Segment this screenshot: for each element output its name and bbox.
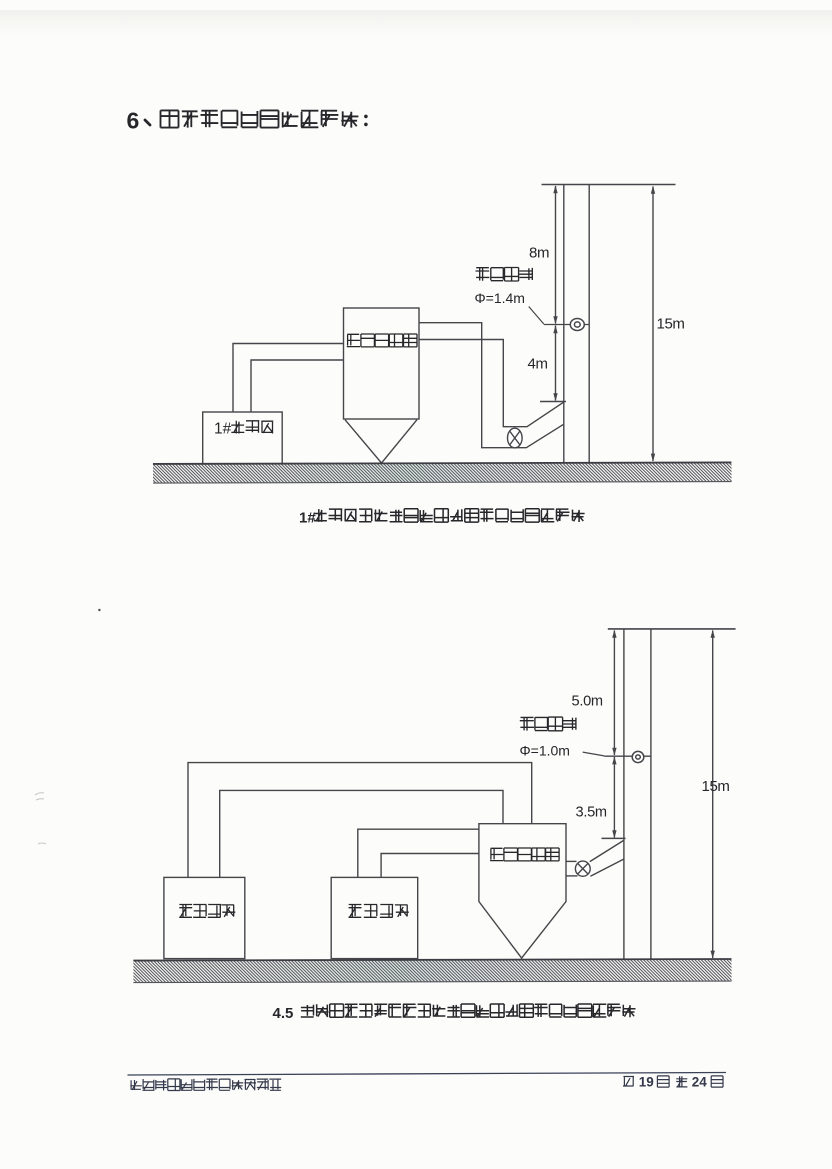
svg-text:1#: 1#	[299, 510, 316, 527]
svg-text:Φ=1.4m: Φ=1.4m	[475, 290, 525, 306]
svg-text:24: 24	[692, 1075, 708, 1090]
svg-text:15m: 15m	[657, 316, 685, 333]
svg-text:4.5: 4.5	[273, 1005, 294, 1022]
svg-text:8m: 8m	[529, 245, 549, 262]
svg-text:19: 19	[639, 1075, 654, 1090]
svg-text:Φ=1.0m: Φ=1.0m	[520, 743, 570, 759]
svg-text:15m: 15m	[702, 778, 730, 795]
svg-text:4m: 4m	[528, 356, 548, 373]
svg-text:1#: 1#	[214, 421, 232, 438]
svg-text:5.0m: 5.0m	[572, 694, 603, 710]
svg-text:3.5m: 3.5m	[576, 805, 607, 821]
svg-text:6: 6	[127, 108, 140, 134]
